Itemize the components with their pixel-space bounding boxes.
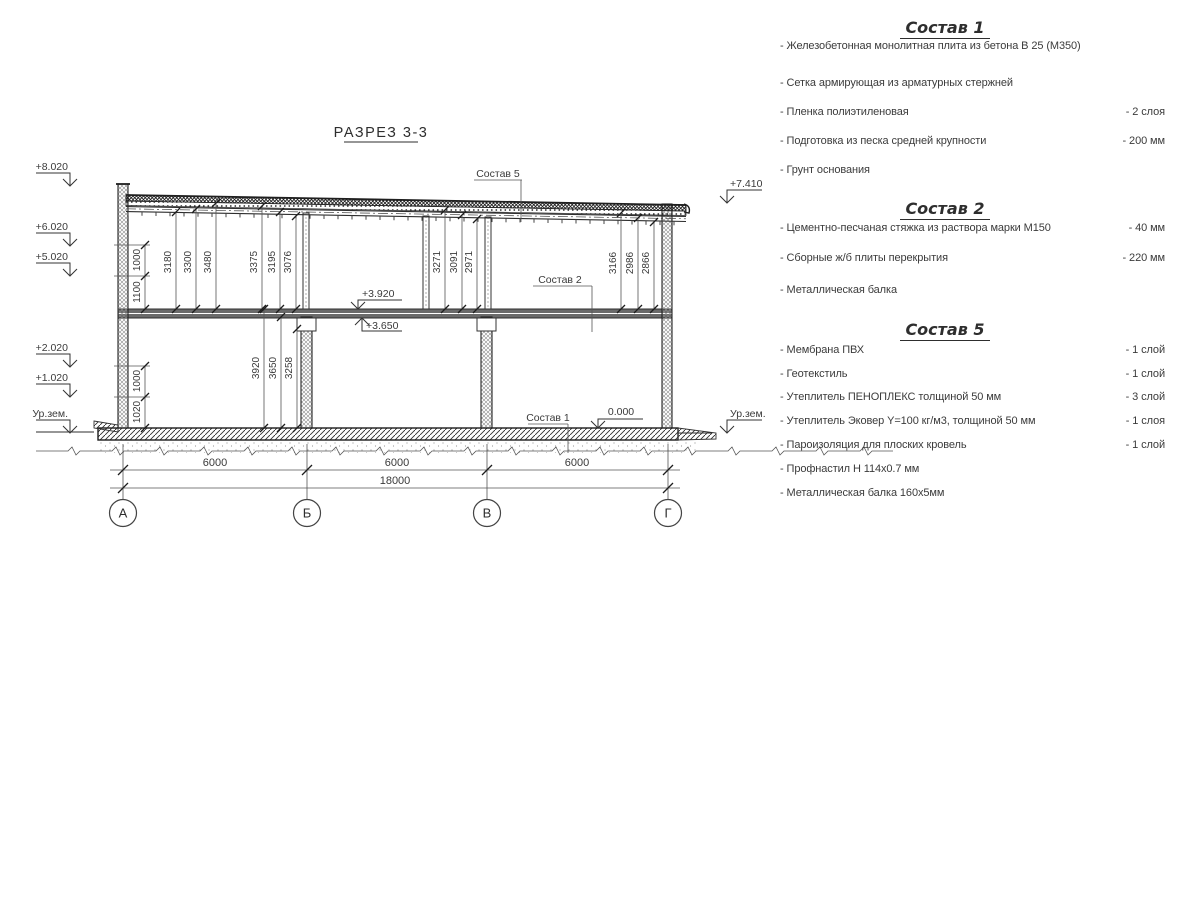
elev-text-1020: +1.020 (36, 372, 69, 384)
dim-3375: 3375 (249, 250, 260, 273)
dim-3920: 3920 (251, 356, 262, 379)
ground-slab (98, 428, 678, 440)
dim-3271: 3271 (432, 250, 443, 273)
item-qty (1105, 284, 1165, 296)
list-item: - Железобетонная монолитная плита из бет… (780, 40, 1165, 52)
item-label: - Подготовка из песка средней крупности (780, 135, 986, 147)
dim-3300: 3300 (183, 250, 194, 273)
item-qty: - 1 слой (1105, 439, 1165, 451)
dim-3076: 3076 (283, 250, 294, 273)
axis-label-V: В (483, 506, 492, 521)
drawing-title: РАЗРЕЗ 3-3 (334, 125, 429, 141)
elev-mark-1020 (36, 384, 77, 397)
item-qty (1105, 40, 1165, 52)
item-label: - Геотекстиль (780, 368, 847, 380)
dim-1000-upper: 1000 (132, 248, 143, 271)
roof (126, 195, 689, 226)
elev-text-6020: +6.020 (36, 221, 69, 233)
elev-text-8020: +8.020 (36, 161, 69, 173)
item-label: - Профнастил Н 114х0.7 мм (780, 463, 919, 475)
list-title-sostav1: Состав 1 (780, 18, 1110, 39)
list-item: - Мембрана ПВХ- 1 слой (780, 344, 1165, 356)
list-title-sostav2: Состав 2 (780, 199, 1110, 220)
dim-3650: 3650 (268, 356, 279, 379)
axis-label-B: Б (303, 506, 312, 521)
dim-3166: 3166 (608, 251, 619, 274)
leader-text-sostav2: Состав 2 (538, 274, 582, 286)
item-qty: - 1 слой (1105, 368, 1165, 380)
item-label: - Пароизоляция для плоских кровель (780, 439, 967, 451)
list-item: - Утеплитель Эковер Y=100 кг/м3, толщино… (780, 415, 1165, 427)
upper-posts (303, 213, 491, 309)
leader-text-sostav5: Состав 5 (476, 168, 520, 180)
item-label: - Пленка полиэтиленовая (780, 106, 909, 118)
item-qty: - 220 мм (1105, 252, 1165, 264)
column-B-lower (301, 317, 312, 428)
axis-bubbles: А Б В Г (110, 500, 682, 527)
list-item: - Металлическая балка (780, 284, 1165, 296)
dim-3091: 3091 (449, 250, 460, 273)
dim-3258: 3258 (284, 356, 295, 379)
list-item: - Геотекстиль- 1 слой (780, 368, 1165, 380)
dim-1100: 1100 (132, 281, 143, 303)
item-label: - Мембрана ПВХ (780, 344, 864, 356)
leader-text-sostav1: Состав 1 (526, 412, 570, 424)
item-qty: - 1 слой (1105, 344, 1165, 356)
item-qty: - 1 слоя (1105, 415, 1165, 427)
elev-text-7410: +7.410 (730, 178, 763, 190)
item-qty (1105, 77, 1165, 89)
elev-mark-2020 (36, 354, 77, 367)
elev-mark-6020 (36, 233, 77, 246)
item-qty: - 3 слой (1105, 391, 1165, 403)
dim-2986: 2986 (625, 251, 636, 274)
elev-text-3920: +3.920 (362, 288, 395, 300)
span-dim-2: 6000 (385, 457, 409, 469)
elev-text-ground-left: Ур.зем. (32, 408, 68, 420)
item-qty (1105, 164, 1165, 176)
elev-text-5020: +5.020 (36, 251, 69, 263)
elev-text-3650: +3.650 (366, 320, 399, 332)
item-label: - Металлическая балка (780, 284, 897, 296)
column-V-capital (477, 318, 496, 331)
total-dim: 18000 (380, 475, 411, 487)
list-item: - Сборные ж/б плиты перекрытия- 220 мм (780, 252, 1165, 264)
dim-2971: 2971 (464, 250, 475, 273)
dim-3180: 3180 (163, 250, 174, 273)
left-wall (118, 184, 128, 428)
right-apron (678, 428, 716, 440)
item-label: - Железобетонная монолитная плита из бет… (780, 40, 1081, 52)
item-label: - Цементно-песчаная стяжка из раствора м… (780, 222, 1051, 234)
item-qty: - 2 слоя (1105, 106, 1165, 118)
list-item: - Подготовка из песка средней крупности-… (780, 135, 1165, 147)
list-item: - Цементно-песчаная стяжка из раствора м… (780, 222, 1165, 234)
axis-label-G: Г (664, 506, 671, 521)
dim-3195: 3195 (267, 250, 278, 273)
elev-mark-0000 (591, 419, 643, 428)
list-title-sostav5: Состав 5 (780, 320, 1110, 341)
elev-mark-7410 (720, 190, 762, 203)
item-label: - Утеплитель Эковер Y=100 кг/м3, толщино… (780, 415, 1035, 427)
elev-mark-ground-left (36, 420, 77, 433)
column-B-capital (297, 318, 316, 331)
elev-mark-8020 (36, 173, 77, 186)
item-label: - Металлическая балка 160х5мм (780, 487, 944, 499)
axis-label-A: А (119, 506, 128, 521)
dim-1000-lower: 1000 (132, 369, 143, 392)
dim-2866: 2866 (641, 251, 652, 274)
item-qty (1105, 463, 1165, 475)
elev-mark-5020 (36, 263, 77, 276)
list-item: - Утеплитель ПЕНОПЛЕКС толщиной 50 мм- 3… (780, 391, 1165, 403)
list-item: - Пароизоляция для плоских кровель- 1 сл… (780, 439, 1165, 451)
item-qty (1105, 487, 1165, 499)
dim-3480: 3480 (203, 250, 214, 273)
bottom-dimensions: 6000 6000 6000 18000 А Б В Г (110, 444, 682, 527)
item-qty: - 40 мм (1105, 222, 1165, 234)
list-item: - Грунт основания (780, 164, 1165, 176)
elev-text-ground-right: Ур.зем. (730, 408, 766, 420)
item-label: - Утеплитель ПЕНОПЛЕКС толщиной 50 мм (780, 391, 1001, 403)
item-qty: - 200 мм (1105, 135, 1165, 147)
span-dim-3: 6000 (565, 457, 589, 469)
elev-mark-3920 (351, 300, 402, 309)
dim-1020: 1020 (132, 400, 143, 423)
drawing-sheet: 3180 3300 3480 3375 3195 3076 3271 3091 … (0, 0, 1200, 900)
list-item: - Металлическая балка 160х5мм (780, 487, 1165, 499)
span-dim-1: 6000 (203, 457, 227, 469)
elev-text-0000: 0.000 (608, 406, 634, 418)
right-wall (662, 204, 672, 428)
column-V-lower (481, 317, 492, 428)
elev-mark-ground-right (720, 420, 762, 433)
item-label: - Грунт основания (780, 164, 870, 176)
elev-text-2020: +2.020 (36, 342, 69, 354)
list-item: - Профнастил Н 114х0.7 мм (780, 463, 1165, 475)
item-label: - Сборные ж/б плиты перекрытия (780, 252, 948, 264)
list-item: - Пленка полиэтиленовая- 2 слоя (780, 106, 1165, 118)
item-label: - Сетка армирующая из арматурных стержне… (780, 77, 1013, 89)
list-item: - Сетка армирующая из арматурных стержне… (780, 77, 1165, 89)
